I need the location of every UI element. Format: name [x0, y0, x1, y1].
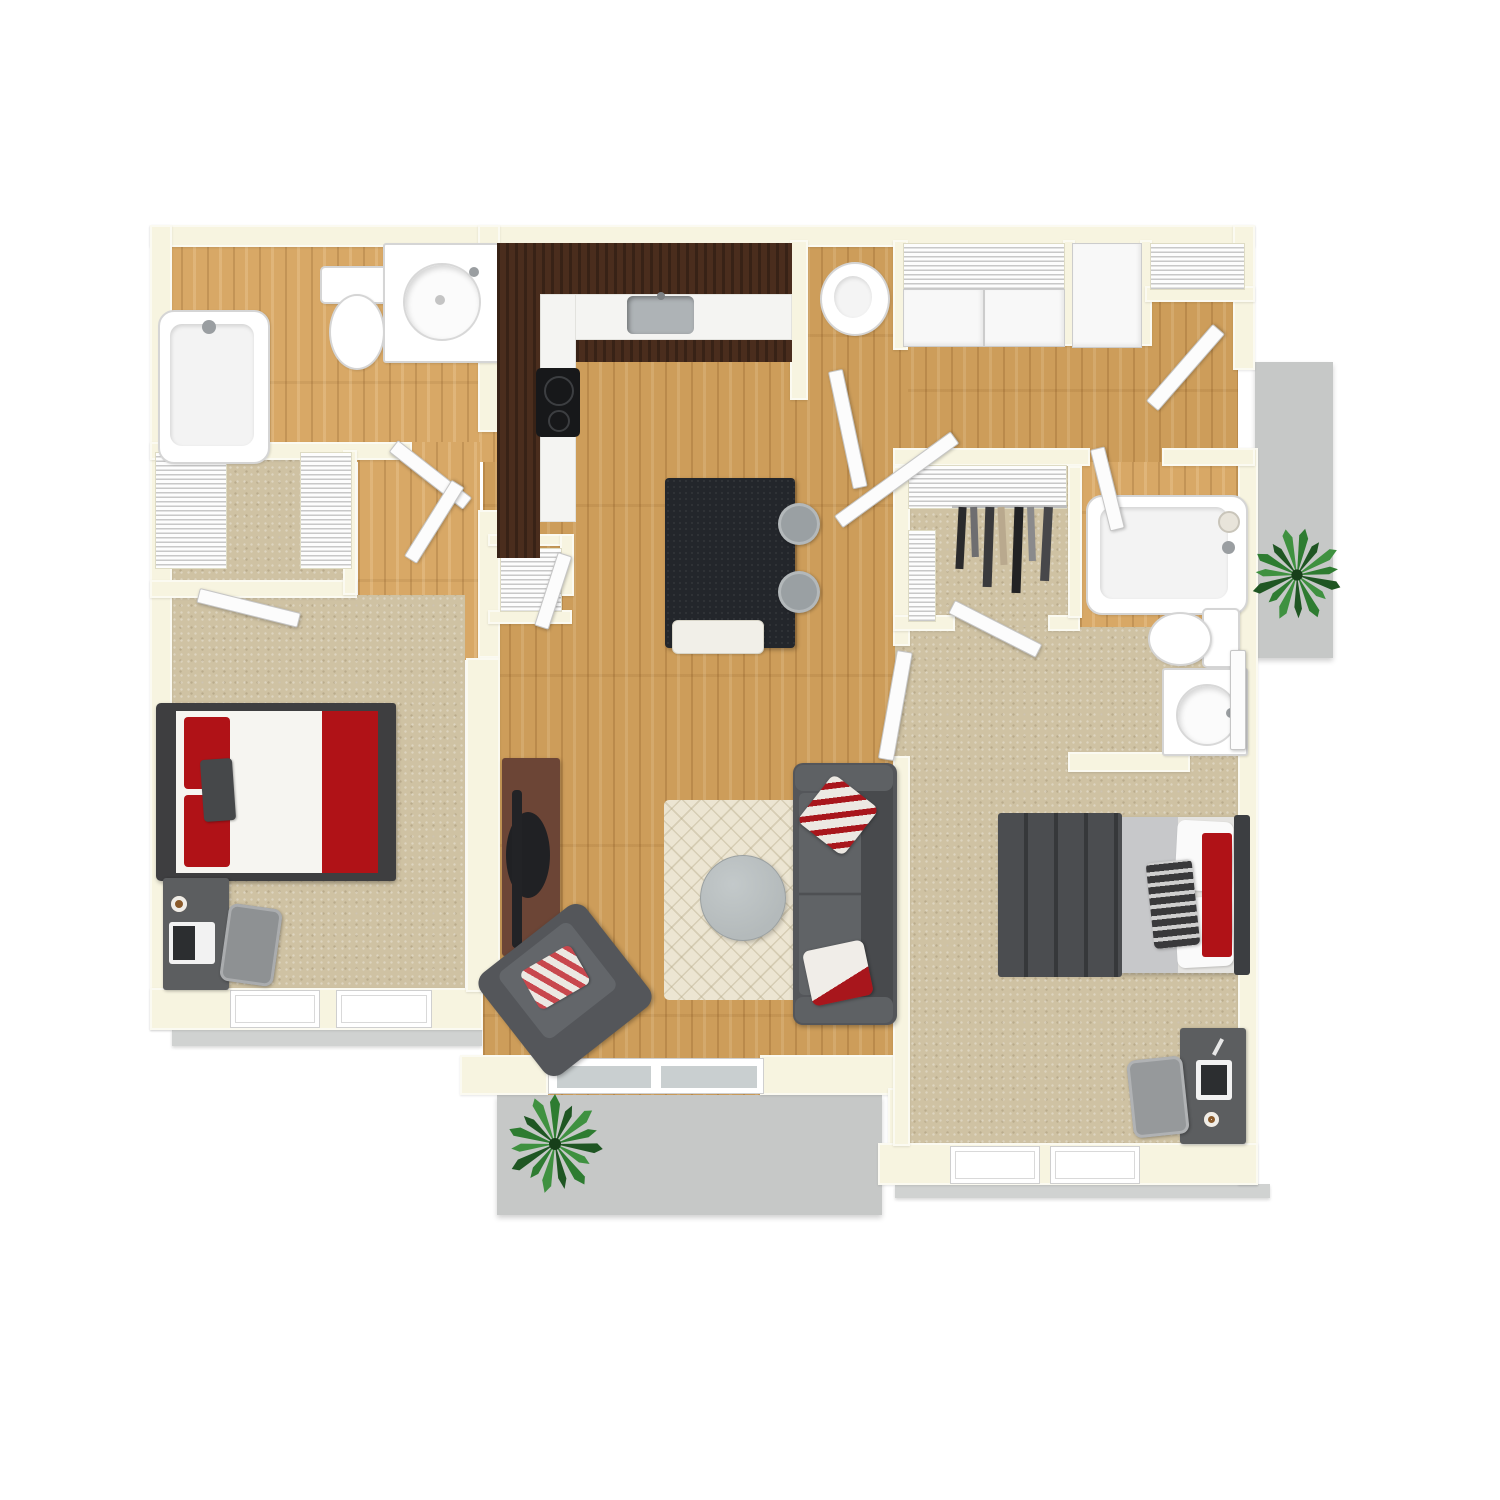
kitchen-counter-north — [497, 243, 792, 294]
garment — [1027, 507, 1036, 561]
wall-closet1-south — [150, 580, 357, 598]
closet-1-shelving-left — [155, 452, 227, 569]
entry-plant — [1250, 528, 1344, 622]
bedroom-2-window-a — [950, 1146, 1040, 1184]
bathtub-1-faucet — [202, 320, 216, 334]
bedroom-1-window-ledge — [172, 1028, 482, 1046]
sink-1-faucet — [469, 267, 479, 277]
wall-hall-suite2-b — [1162, 448, 1255, 466]
sofa-armrest-bottom — [795, 997, 893, 1023]
garment — [983, 507, 995, 587]
desk-1-laptop — [169, 922, 215, 964]
sliding-door-pane-left — [555, 1064, 653, 1090]
bed-2-blanket — [998, 813, 1122, 977]
bathtub-2-shower-dial — [1218, 511, 1240, 533]
wall-closet2-bath2 — [1068, 466, 1082, 618]
toilet-1-bowl — [329, 294, 385, 370]
floor-plan-canvas — [0, 0, 1500, 1500]
bedroom-2-window-b — [1050, 1146, 1140, 1184]
bed-1-runner — [322, 711, 378, 873]
closet-2-shelving-left — [908, 530, 936, 622]
bifold-closet-door-left — [903, 289, 984, 347]
closet-2-hanging-clothes — [955, 507, 1067, 599]
kitchen-counter-front — [576, 340, 792, 362]
desk-chair-2 — [1126, 1055, 1190, 1138]
closet-2-shelving-top — [908, 465, 1067, 509]
shelf-closet — [1072, 243, 1142, 348]
garment — [997, 507, 1007, 565]
bathtub-1-basin — [170, 324, 254, 446]
island-bench — [672, 620, 764, 654]
desk-1-laptop-screen — [173, 926, 195, 960]
wall-living-south-right — [760, 1055, 908, 1095]
washer — [820, 262, 890, 336]
kitchen-sink — [627, 296, 694, 334]
desk-2-monitor — [1196, 1060, 1232, 1100]
barstool-1 — [778, 503, 820, 545]
closet-1-shelving-right — [300, 452, 352, 569]
bathtub-2-faucet — [1222, 541, 1235, 554]
barstool-2 — [778, 571, 820, 613]
garment — [1040, 507, 1053, 581]
desk-2-pen — [1212, 1038, 1224, 1056]
bed-1 — [156, 703, 396, 881]
linen-closet-louvers — [1150, 243, 1245, 290]
garment — [955, 507, 966, 569]
cooktop — [536, 368, 580, 437]
desk-1-mug — [171, 896, 187, 912]
garment — [970, 507, 979, 557]
wall-coat-closet-south — [488, 610, 572, 624]
bifold-closet-door-right — [984, 289, 1065, 347]
sliding-glass-door — [548, 1058, 764, 1094]
bed-2-headboard — [1234, 815, 1250, 975]
desk-2-monitor-screen — [1201, 1065, 1227, 1095]
washer-lid — [834, 276, 872, 318]
bifold-closet-louvers — [903, 243, 1065, 291]
kitchen-sink-faucet — [657, 292, 665, 300]
bed-1-dark-cushion — [200, 758, 236, 822]
patio-plant — [505, 1094, 605, 1194]
patio-plant-svg — [505, 1094, 605, 1194]
bedroom-2-window-ledge — [895, 1184, 1270, 1198]
tv-edge — [512, 790, 522, 948]
cooktop-burner-small — [548, 410, 570, 432]
vanity-1 — [383, 243, 507, 363]
entry-plant-svg — [1250, 528, 1344, 622]
bathtub-1 — [158, 310, 270, 464]
bed-1-footboard — [378, 703, 396, 881]
kitchen-counter-west — [497, 243, 540, 558]
cooktop-burner-large — [544, 376, 574, 406]
bed-2-pillow-red — [1202, 833, 1232, 957]
bathroom-2-door — [1230, 650, 1246, 750]
bed-2-pillow-striped — [1146, 859, 1201, 949]
wall-bedroom1-east — [466, 658, 500, 992]
round-ottoman — [700, 855, 786, 941]
sofa — [793, 763, 897, 1025]
bed-2 — [998, 813, 1250, 977]
sliding-door-pane-right — [659, 1064, 759, 1090]
garment — [1012, 507, 1024, 593]
desk-2-mug — [1204, 1112, 1219, 1127]
bedroom-1-window-b — [336, 990, 432, 1028]
bedroom-1-window-a — [230, 990, 320, 1028]
wall-kitchen-laundry — [790, 240, 808, 400]
desk-2 — [1180, 1028, 1246, 1144]
sink-1-drain — [435, 295, 445, 305]
desk-chair-1 — [219, 903, 283, 988]
toilet-2-bowl — [1148, 612, 1212, 666]
